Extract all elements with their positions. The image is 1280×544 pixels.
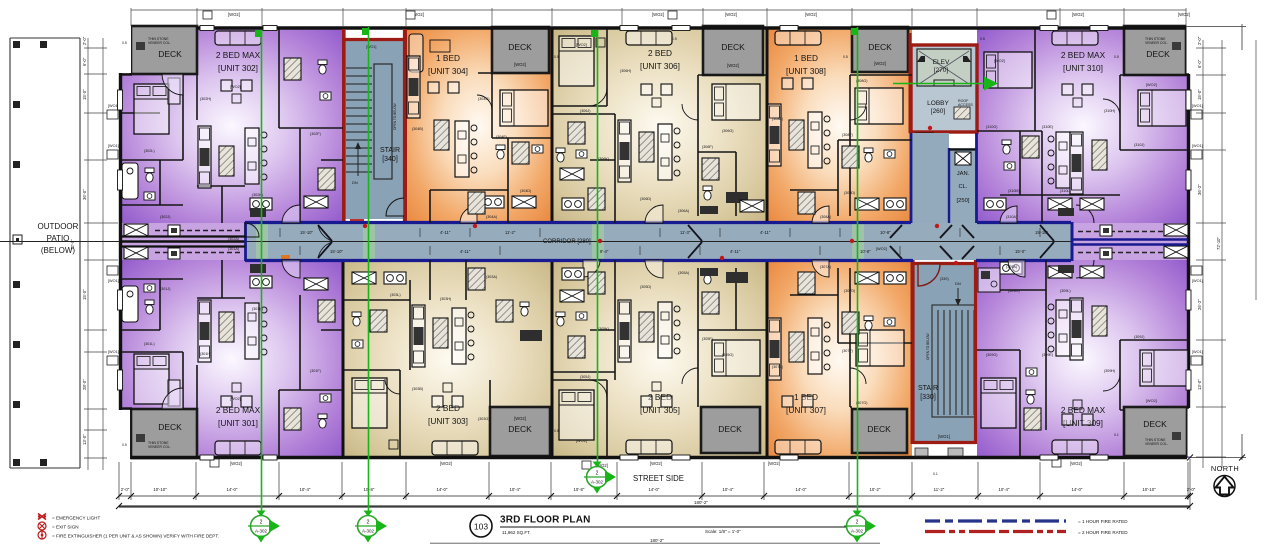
svg-text:[WO2]: [WO2]: [876, 247, 887, 251]
svg-text:JAN.: JAN.: [957, 171, 970, 177]
svg-text:2'-0": 2'-0": [1187, 487, 1196, 492]
svg-text:OPEN TO BELOW: OPEN TO BELOW: [926, 333, 930, 360]
svg-text:[WO1]: [WO1]: [1192, 350, 1203, 354]
svg-text:(305J): (305J): [580, 375, 590, 379]
svg-text:(309M): (309M): [1008, 289, 1020, 293]
svg-text:2 BED MAX: 2 BED MAX: [216, 50, 261, 60]
svg-text:Scale: 1/8" = 1'-0": Scale: 1/8" = 1'-0": [705, 529, 741, 534]
svg-text:[WO2]: [WO2]: [652, 12, 664, 17]
svg-text:[UNIT 303]: [UNIT 303]: [428, 416, 468, 426]
svg-text:DECK: DECK: [508, 424, 532, 434]
svg-text:(308B): (308B): [772, 117, 783, 121]
svg-text:[270]: [270]: [934, 67, 949, 74]
svg-text:10'-2": 10'-2": [870, 487, 881, 492]
svg-text:26'-2": 26'-2": [1197, 299, 1202, 310]
svg-text:[WO2]: [WO2]: [514, 62, 526, 67]
svg-text:(303L): (303L): [390, 293, 401, 297]
svg-text:DN: DN: [955, 281, 961, 286]
svg-text:(306G): (306G): [722, 129, 733, 133]
svg-text:[260]: [260]: [931, 108, 946, 115]
svg-text:(304A): (304A): [486, 215, 497, 219]
svg-text:CL.: CL.: [958, 184, 967, 190]
svg-text:14'-0": 14'-0": [796, 487, 807, 492]
svg-text:CORRIDOR [280]: CORRIDOR [280]: [543, 239, 591, 245]
svg-text:VENEER COL.: VENEER COL.: [148, 41, 171, 45]
svg-text:3RD FLOOR PLAN: 3RD FLOOR PLAN: [500, 515, 591, 526]
svg-text:(309G): (309G): [986, 353, 997, 357]
svg-text:(310A): (310A): [1006, 215, 1017, 219]
svg-text:(302A): (302A): [228, 237, 239, 241]
svg-text:10'-4": 10'-4": [300, 487, 311, 492]
svg-text:(306H): (306H): [620, 69, 631, 73]
svg-text:(307F): (307F): [842, 349, 853, 353]
svg-text:[WO2]: [WO2]: [228, 12, 240, 17]
svg-text:DECK: DECK: [718, 424, 742, 434]
svg-text:(301A): (301A): [228, 247, 239, 251]
svg-text:(307D): (307D): [844, 289, 855, 293]
svg-text:(305D): (305D): [640, 285, 651, 289]
svg-text:LOBBY: LOBBY: [927, 100, 949, 107]
svg-text:[UNIT 301]: [UNIT 301]: [218, 418, 258, 428]
svg-text:15'-0": 15'-0": [1015, 249, 1026, 254]
svg-text:8'-4": 8'-4": [600, 249, 609, 254]
svg-text:28'-0": 28'-0": [82, 379, 87, 390]
svg-text:[340]: [340]: [382, 156, 398, 163]
svg-text:ACCESS: ACCESS: [958, 103, 973, 107]
svg-text:15'-0": 15'-0": [82, 289, 87, 300]
svg-text:(302F): (302F): [310, 132, 321, 136]
svg-text:[WO2]: [WO2]: [1070, 461, 1082, 466]
svg-text:10'-8": 10'-8": [860, 249, 871, 254]
svg-text:13'-0": 13'-0": [1197, 379, 1202, 390]
svg-text:4'-11": 4'-11": [760, 230, 771, 235]
svg-text:DN: DN: [352, 180, 358, 185]
svg-text:2'-0": 2'-0": [121, 487, 130, 492]
svg-text:(305K): (305K): [598, 327, 609, 331]
svg-text:(310L): (310L): [1060, 189, 1071, 193]
svg-text:(306D): (306D): [640, 197, 651, 201]
svg-text:180'-2": 180'-2": [694, 500, 708, 505]
svg-text:(307B): (307B): [772, 365, 783, 369]
svg-text:[WO1]: [WO1]: [108, 144, 119, 148]
svg-text:(302J): (302J): [160, 215, 170, 219]
svg-text:[WO2]: [WO2]: [650, 461, 662, 466]
svg-text:0.5: 0.5: [122, 443, 127, 447]
svg-text:2 BED MAX: 2 BED MAX: [1061, 50, 1106, 60]
svg-text:VENEER COL.: VENEER COL.: [1145, 41, 1168, 45]
svg-text:[WO1]: [WO1]: [938, 434, 950, 439]
svg-text:72'-10": 72'-10": [1216, 236, 1221, 250]
svg-text:10'-4": 10'-4": [999, 487, 1010, 492]
svg-text:2'-0": 2'-0": [1197, 36, 1202, 45]
svg-text:[250]: [250]: [957, 198, 970, 204]
svg-text:0.1: 0.1: [933, 472, 938, 476]
svg-text:= FIRE EXTINGUISHER (1 PER UNI: = FIRE EXTINGUISHER (1 PER UNIT & AS SHO…: [52, 534, 219, 539]
svg-text:(309L): (309L): [1060, 289, 1071, 293]
svg-text:(306K): (306K): [598, 157, 609, 161]
svg-text:13'-0": 13'-0": [82, 434, 87, 445]
svg-text:15'-0": 15'-0": [1197, 89, 1202, 100]
svg-text:14'-0": 14'-0": [227, 487, 238, 492]
svg-text:(305G): (305G): [722, 353, 733, 357]
svg-text:(309J): (309J): [1134, 335, 1144, 339]
svg-text:OUTDOOR: OUTDOOR: [38, 222, 79, 231]
svg-text:(306A): (306A): [678, 209, 689, 213]
svg-text:[WO2]: [WO2]: [230, 85, 241, 89]
svg-text:[WO2]: [WO2]: [1146, 83, 1157, 87]
svg-text:[WO1]: [WO1]: [1192, 144, 1203, 148]
svg-text:4'-11": 4'-11": [730, 249, 741, 254]
svg-text:(308A): (308A): [820, 215, 831, 219]
svg-text:STAIR: STAIR: [380, 147, 400, 154]
svg-text:10'-4": 10'-4": [510, 487, 521, 492]
svg-text:[WO1]: [WO1]: [108, 350, 119, 354]
svg-text:14'-0": 14'-0": [437, 487, 448, 492]
svg-text:[UNIT 308]: [UNIT 308]: [786, 66, 826, 76]
svg-text:6'-0": 6'-0": [1197, 59, 1202, 68]
svg-text:(301F): (301F): [310, 369, 321, 373]
svg-text:(303B): (303B): [412, 387, 423, 391]
svg-text:ELEV: ELEV: [933, 59, 950, 66]
svg-text:(307A): (307A): [820, 265, 831, 269]
svg-text:11,962 SQ.FT.: 11,962 SQ.FT.: [502, 530, 531, 535]
svg-text:(309H): (309H): [1104, 369, 1115, 373]
svg-text:(304B): (304B): [412, 127, 423, 131]
svg-text:(308F): (308F): [842, 133, 853, 137]
svg-text:(309A): (309A): [1006, 265, 1017, 269]
svg-text:(303G): (303G): [478, 417, 489, 421]
svg-text:[UNIT 306]: [UNIT 306]: [640, 61, 680, 71]
svg-text:6'-0": 6'-0": [82, 57, 87, 66]
svg-text:(303A): (303A): [486, 275, 497, 279]
svg-text:[WO1]: [WO1]: [108, 279, 119, 283]
svg-text:0.5: 0.5: [122, 41, 127, 45]
svg-text:[WO2]: [WO2]: [1178, 12, 1190, 17]
svg-text:[WO2]: [WO2]: [1072, 12, 1084, 17]
svg-text:10'-4": 10'-4": [723, 487, 734, 492]
svg-text:= 1 HOUR FIRE RATED: = 1 HOUR FIRE RATED: [1078, 519, 1128, 524]
svg-text:(306J): (306J): [580, 109, 590, 113]
svg-text:(304F): (304F): [496, 135, 507, 139]
svg-text:0.5: 0.5: [1114, 55, 1119, 59]
svg-text:DECK: DECK: [868, 42, 892, 52]
svg-text:(310H): (310H): [1104, 109, 1115, 113]
svg-text:180'-2": 180'-2": [650, 538, 664, 543]
svg-text:[WO1]: [WO1]: [1192, 279, 1203, 283]
svg-text:10'-8": 10'-8": [574, 487, 585, 492]
svg-text:DECK: DECK: [867, 424, 891, 434]
svg-text:[UNIT 304]: [UNIT 304]: [428, 66, 468, 76]
svg-text:DECK: DECK: [158, 422, 182, 432]
svg-text:1 BED: 1 BED: [794, 53, 818, 63]
svg-text:0.5: 0.5: [554, 55, 559, 59]
svg-text:VENEER COL.: VENEER COL.: [148, 445, 171, 449]
svg-text:DECK: DECK: [721, 42, 745, 52]
svg-text:OPEN TO BELOW: OPEN TO BELOW: [393, 103, 397, 130]
svg-text:DECK: DECK: [1143, 419, 1167, 429]
svg-text:DECK: DECK: [158, 49, 182, 59]
svg-text:0.1: 0.1: [1114, 433, 1119, 437]
svg-text:10'-8": 10'-8": [880, 230, 891, 235]
svg-text:14'-0": 14'-0": [1072, 487, 1083, 492]
svg-text:2 BED: 2 BED: [648, 48, 672, 58]
svg-text:4'-11": 4'-11": [460, 249, 471, 254]
svg-text:[WO2]: [WO2]: [440, 461, 452, 466]
svg-text:0.5: 0.5: [554, 429, 559, 433]
svg-text:72'-0": 72'-0": [70, 239, 75, 250]
svg-text:(301H): (301H): [200, 352, 211, 356]
svg-text:[UNIT 310]: [UNIT 310]: [1063, 63, 1103, 73]
svg-text:[WO2]: [WO2]: [514, 416, 526, 421]
svg-text:[WO2]: [WO2]: [727, 63, 739, 68]
svg-text:14'-0": 14'-0": [649, 487, 660, 492]
svg-text:(302H): (302H): [200, 97, 211, 101]
svg-text:(308D): (308D): [844, 191, 855, 195]
svg-text:36'-2": 36'-2": [1197, 184, 1202, 195]
svg-text:(302L): (302L): [144, 149, 155, 153]
svg-text:(310G): (310G): [986, 125, 997, 129]
svg-text:(304D): (304D): [520, 189, 531, 193]
svg-text:(310J): (310J): [1134, 143, 1144, 147]
svg-text:0.5: 0.5: [672, 37, 677, 41]
svg-text:[WO1]: [WO1]: [1192, 104, 1203, 108]
svg-text:15'-10": 15'-10": [1035, 230, 1049, 235]
svg-text:[WO2]: [WO2]: [725, 12, 737, 17]
svg-text:[WO2]: [WO2]: [576, 439, 587, 443]
svg-text:[WO2]: [WO2]: [874, 61, 886, 66]
svg-text:[WO2]: [WO2]: [1146, 399, 1157, 403]
svg-text:[WO2]: [WO2]: [768, 461, 780, 466]
svg-text:10'-10": 10'-10": [153, 487, 167, 492]
svg-text:STREET SIDE: STREET SIDE: [633, 474, 684, 483]
svg-text:[330]: [330]: [920, 394, 936, 401]
svg-text:[WO2]: [WO2]: [230, 461, 242, 466]
svg-text:[WO1]: [WO1]: [366, 45, 376, 49]
svg-text:[WO2]: [WO2]: [576, 43, 587, 47]
svg-text:15'-10": 15'-10": [330, 249, 344, 254]
svg-text:11'-2": 11'-2": [505, 230, 516, 235]
svg-text:10'-10": 10'-10": [1142, 487, 1156, 492]
svg-text:(301J): (301J): [160, 287, 170, 291]
svg-text:[WO2]: [WO2]: [994, 59, 1005, 63]
svg-text:36'-0": 36'-0": [82, 189, 87, 200]
svg-text:1 BED: 1 BED: [436, 53, 460, 63]
svg-text:(310M): (310M): [1008, 189, 1020, 193]
svg-text:[WO2]: [WO2]: [805, 12, 817, 17]
svg-text:11'-2": 11'-2": [934, 487, 945, 492]
svg-text:(330): (330): [940, 277, 949, 281]
svg-text:15'-10": 15'-10": [300, 230, 314, 235]
svg-text:(303H): (303H): [440, 297, 451, 301]
svg-text:(301L): (301L): [144, 342, 155, 346]
svg-text:2'-0": 2'-0": [82, 36, 87, 45]
svg-text:= EXIT SIGN: = EXIT SIGN: [52, 525, 79, 530]
svg-text:(309E): (309E): [1042, 353, 1053, 357]
svg-text:4'-11": 4'-11": [440, 230, 451, 235]
svg-text:0.5: 0.5: [843, 55, 848, 59]
svg-text:0.5: 0.5: [980, 37, 985, 41]
svg-text:DECK: DECK: [1146, 49, 1170, 59]
svg-text:11'-3": 11'-3": [680, 230, 691, 235]
svg-text:(305A): (305A): [678, 271, 689, 275]
svg-text:[UNIT 302]: [UNIT 302]: [218, 63, 258, 73]
svg-text:STAIR: STAIR: [918, 385, 938, 392]
svg-text:103: 103: [474, 522, 488, 532]
svg-text:= 2 HOUR FIRE RATED: = 2 HOUR FIRE RATED: [1078, 530, 1128, 535]
svg-text:= EMERGENCY LIGHT: = EMERGENCY LIGHT: [52, 516, 100, 521]
svg-text:NORTH: NORTH: [1211, 464, 1239, 473]
svg-text:[WO2]: [WO2]: [230, 397, 241, 401]
svg-text:(305F): (305F): [702, 337, 713, 341]
svg-text:15'-0": 15'-0": [82, 89, 87, 100]
svg-text:VENEER COL.: VENEER COL.: [1145, 442, 1168, 446]
svg-text:(306F): (306F): [702, 145, 713, 149]
svg-text:DECK: DECK: [508, 42, 532, 52]
svg-text:(310E): (310E): [1042, 125, 1053, 129]
